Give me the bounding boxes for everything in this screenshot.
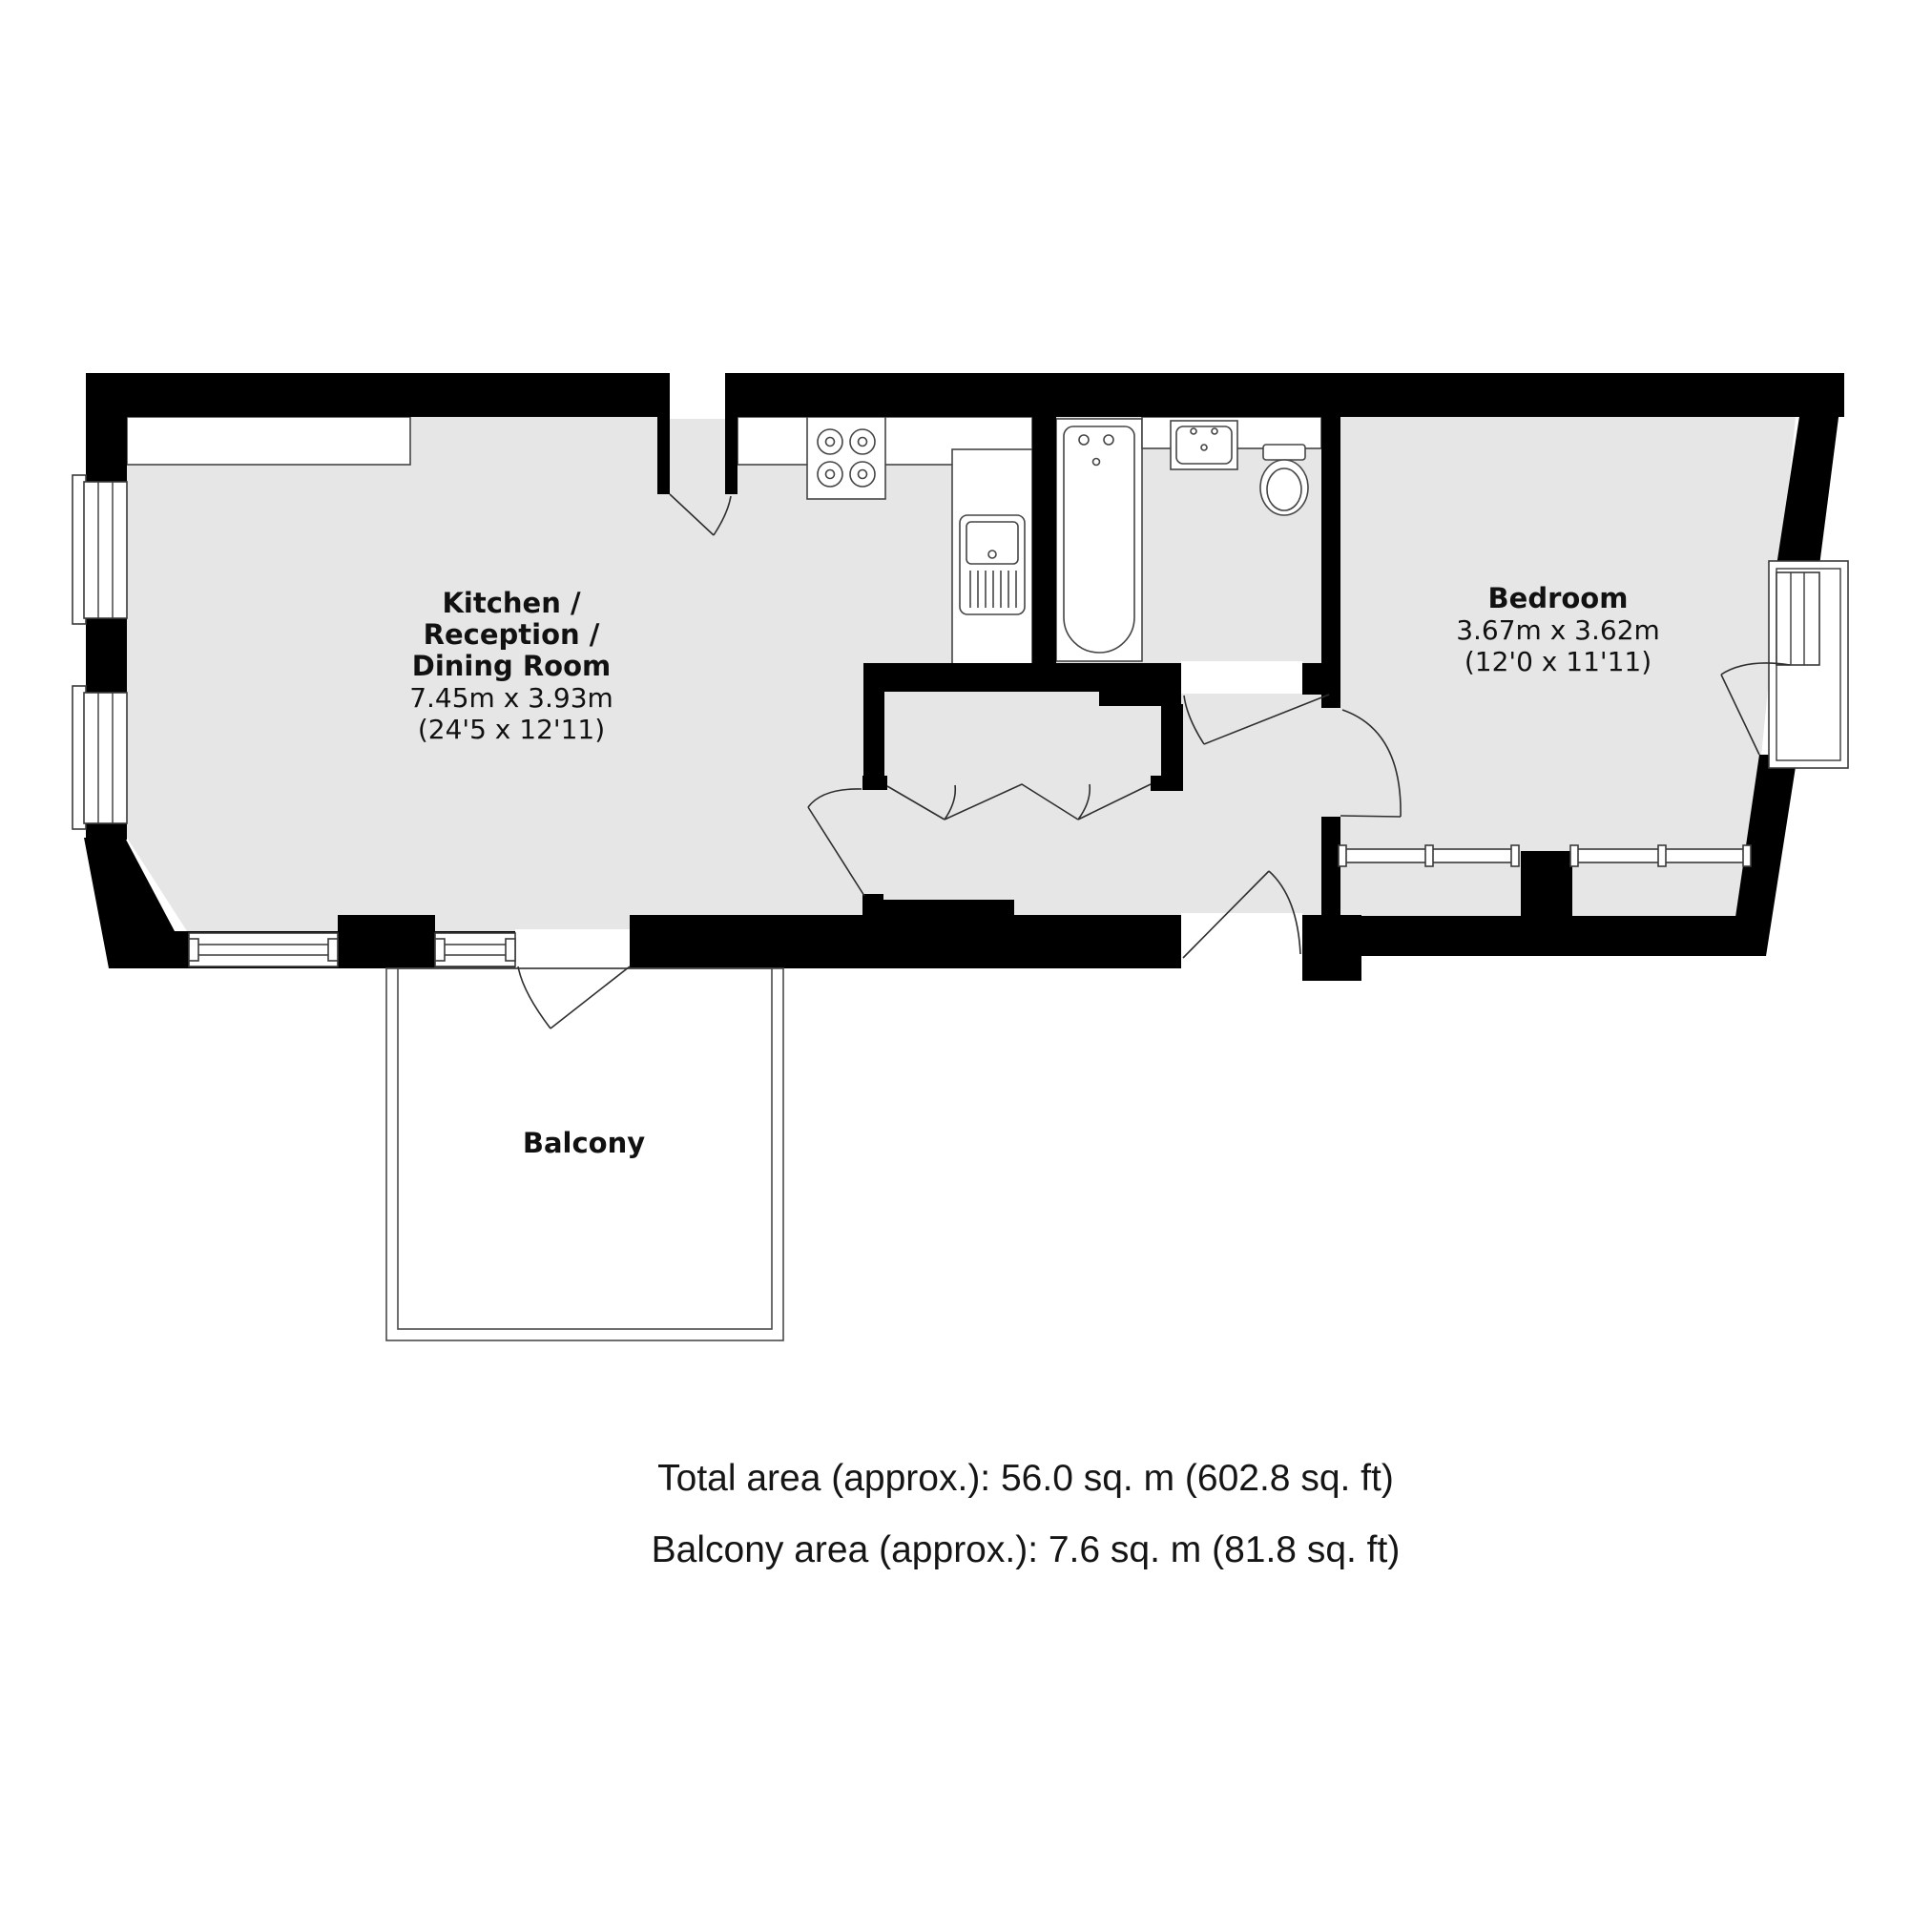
bathroom-door-opening bbox=[1181, 661, 1302, 694]
wall-bedroom-left-lower bbox=[1321, 817, 1340, 956]
wall-kitchen-bathroom bbox=[1032, 417, 1056, 665]
kitchen-label-line2: Reception / bbox=[424, 618, 600, 651]
bedroom-dims-imperial: (12'0 x 11'11) bbox=[1465, 646, 1652, 677]
window-bedroom-bottom-left bbox=[1339, 845, 1519, 866]
door-jamb-top-left bbox=[657, 417, 670, 494]
kitchen-sink-icon bbox=[960, 515, 1025, 614]
wall-hall-ledge bbox=[863, 900, 1014, 917]
total-area-text: Total area (approx.): 56.0 sq. m (602.8 … bbox=[657, 1458, 1394, 1499]
floorplan-drawing: Kitchen / Reception / Dining Room 7.45m … bbox=[0, 0, 1932, 1932]
wall-closet-left bbox=[863, 692, 884, 790]
wall-closet-right bbox=[1161, 704, 1183, 788]
window-bedroom-bottom-right bbox=[1570, 845, 1751, 866]
bedroom-dims-metric: 3.67m x 3.62m bbox=[1456, 614, 1660, 646]
wall-pier-kitchen-windows bbox=[338, 915, 435, 968]
top-door-opening bbox=[670, 371, 725, 419]
wall-top bbox=[86, 373, 1844, 417]
kitchen-dims-metric: 7.45m x 3.93m bbox=[409, 682, 613, 714]
window-left-upper bbox=[73, 475, 127, 624]
wash-basin-icon bbox=[1171, 421, 1237, 469]
balcony-label: Balcony bbox=[523, 1127, 645, 1159]
wall-bedroom-window-pier bbox=[1521, 851, 1572, 918]
kitchen-dims-imperial: (24'5 x 12'11) bbox=[418, 714, 605, 745]
window-kitchen-bottom-right bbox=[435, 933, 515, 966]
floorplan-page: Kitchen / Reception / Dining Room 7.45m … bbox=[0, 0, 1932, 1932]
bedroom-label: Bedroom bbox=[1488, 582, 1629, 614]
window-left-lower bbox=[73, 686, 127, 829]
toilet-icon bbox=[1260, 445, 1308, 515]
kitchen-label-line1: Kitchen / bbox=[442, 587, 581, 619]
wall-passage-stub bbox=[862, 894, 883, 915]
wall-bathroom-step bbox=[1099, 682, 1181, 706]
window-kitchen-bottom-left bbox=[189, 933, 338, 966]
kitchen-label-line3: Dining Room bbox=[412, 650, 612, 682]
wall-closet-left-foot bbox=[862, 776, 887, 790]
bedroom-door-gap-floor bbox=[1321, 708, 1340, 817]
wall-bedroom-bottom bbox=[1340, 916, 1755, 956]
wall-bathroom-bedroom-upper bbox=[1321, 417, 1340, 708]
balcony-door-opening bbox=[515, 929, 630, 970]
stove-icon bbox=[807, 417, 885, 499]
balcony-area-text: Balcony area (approx.): 7.6 sq. m (81.8 … bbox=[652, 1529, 1401, 1570]
bathtub-icon bbox=[1056, 419, 1142, 661]
wall-hall-bottom bbox=[630, 915, 1181, 968]
kitchen-counter-left bbox=[127, 417, 410, 465]
footer-area-text: Total area (approx.): 56.0 sq. m (602.8 … bbox=[652, 1458, 1401, 1570]
door-jamb-top-right bbox=[725, 417, 737, 494]
wall-closet-right-foot bbox=[1151, 776, 1183, 791]
